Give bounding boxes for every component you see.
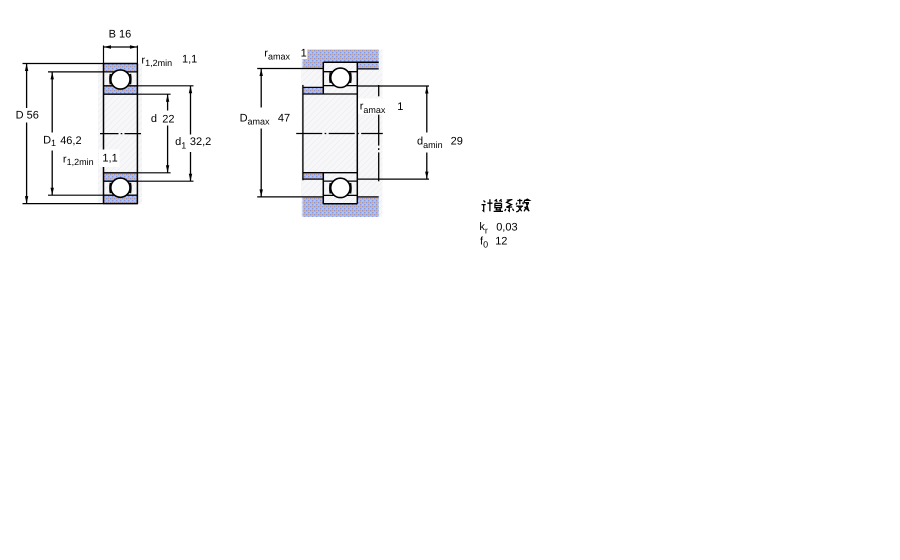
- svg-text:0,03: 0,03: [496, 221, 517, 233]
- svg-text:B 16: B 16: [109, 29, 132, 41]
- svg-text:1: 1: [397, 101, 403, 113]
- svg-text:46,2: 46,2: [60, 135, 81, 147]
- svg-text:22: 22: [162, 113, 174, 125]
- svg-text:1: 1: [301, 48, 307, 60]
- svg-text:32,2: 32,2: [190, 136, 211, 148]
- svg-text:29: 29: [451, 136, 463, 148]
- svg-text:d: d: [151, 113, 157, 125]
- svg-text:1,1: 1,1: [182, 53, 197, 65]
- svg-text:1,1: 1,1: [102, 152, 117, 164]
- svg-text:D 56: D 56: [16, 110, 39, 122]
- svg-text:12: 12: [495, 236, 507, 248]
- svg-text:47: 47: [278, 112, 290, 124]
